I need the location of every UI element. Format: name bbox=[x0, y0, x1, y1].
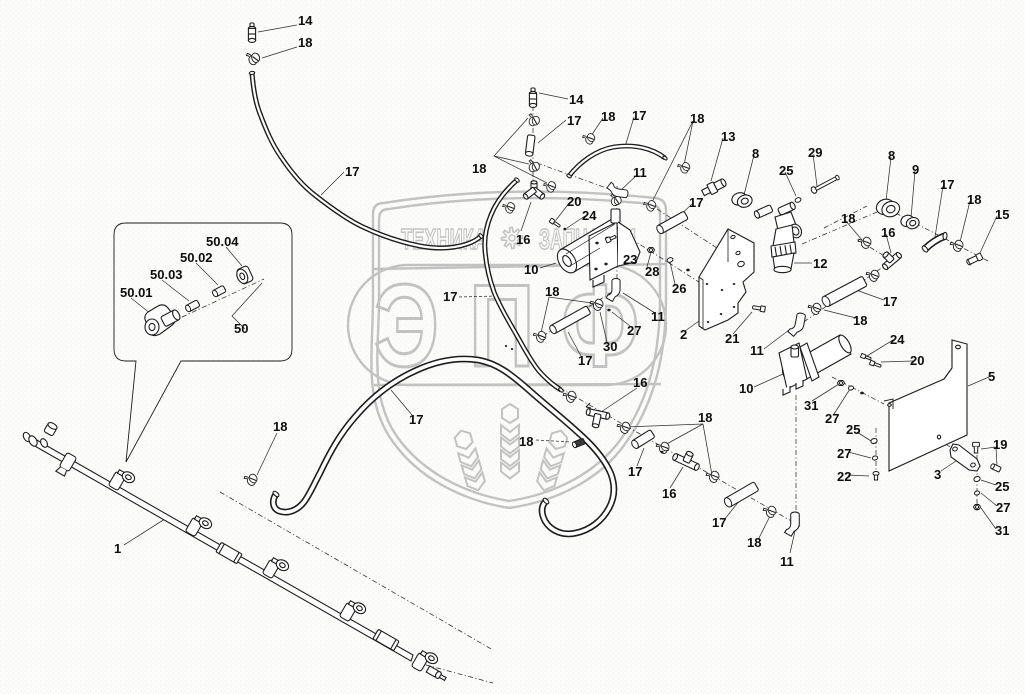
svg-text:18: 18 bbox=[472, 161, 486, 176]
svg-text:24: 24 bbox=[582, 208, 597, 223]
svg-text:14: 14 bbox=[298, 13, 313, 28]
svg-text:21: 21 bbox=[725, 331, 739, 346]
svg-text:1: 1 bbox=[114, 541, 121, 556]
svg-text:18: 18 bbox=[545, 284, 559, 299]
svg-text:8: 8 bbox=[888, 148, 895, 163]
svg-text:17: 17 bbox=[628, 464, 642, 479]
svg-text:18: 18 bbox=[519, 434, 533, 449]
svg-text:17: 17 bbox=[632, 108, 646, 123]
svg-text:27: 27 bbox=[627, 323, 641, 338]
svg-text:11: 11 bbox=[780, 554, 794, 569]
svg-text:17: 17 bbox=[712, 515, 726, 530]
svg-text:18: 18 bbox=[967, 192, 981, 207]
svg-text:17: 17 bbox=[578, 353, 592, 368]
svg-text:2: 2 bbox=[680, 327, 687, 342]
svg-text:29: 29 bbox=[808, 145, 822, 160]
svg-text:18: 18 bbox=[298, 35, 312, 50]
svg-text:18: 18 bbox=[273, 419, 287, 434]
svg-text:16: 16 bbox=[633, 375, 647, 390]
svg-text:26: 26 bbox=[672, 281, 686, 296]
svg-text:13: 13 bbox=[721, 129, 735, 144]
svg-text:5: 5 bbox=[988, 369, 995, 384]
svg-text:23: 23 bbox=[623, 252, 637, 267]
svg-text:30: 30 bbox=[603, 339, 617, 354]
svg-text:28: 28 bbox=[645, 264, 659, 279]
svg-text:27: 27 bbox=[996, 500, 1010, 515]
svg-text:17: 17 bbox=[443, 289, 457, 304]
svg-text:27: 27 bbox=[837, 446, 851, 461]
svg-text:17: 17 bbox=[409, 412, 423, 427]
svg-text:17: 17 bbox=[883, 294, 897, 309]
svg-text:16: 16 bbox=[516, 232, 530, 247]
svg-text:25: 25 bbox=[779, 163, 793, 178]
svg-text:24: 24 bbox=[890, 332, 905, 347]
svg-text:15: 15 bbox=[995, 207, 1009, 222]
svg-text:17: 17 bbox=[567, 113, 581, 128]
svg-text:18: 18 bbox=[690, 111, 704, 126]
svg-text:27: 27 bbox=[825, 411, 839, 426]
svg-text:18: 18 bbox=[601, 109, 615, 124]
svg-text:20: 20 bbox=[567, 194, 581, 209]
svg-text:16: 16 bbox=[662, 486, 676, 501]
svg-text:16: 16 bbox=[881, 225, 895, 240]
svg-text:50: 50 bbox=[234, 321, 248, 336]
svg-text:11: 11 bbox=[651, 309, 665, 324]
svg-text:18: 18 bbox=[698, 410, 712, 425]
svg-text:10: 10 bbox=[739, 381, 753, 396]
svg-text:10: 10 bbox=[524, 262, 538, 277]
svg-text:17: 17 bbox=[940, 177, 954, 192]
svg-text:25: 25 bbox=[995, 479, 1009, 494]
svg-text:50.01: 50.01 bbox=[120, 285, 153, 300]
svg-text:50.03: 50.03 bbox=[150, 267, 183, 282]
svg-text:20: 20 bbox=[910, 353, 924, 368]
svg-text:31: 31 bbox=[804, 398, 818, 413]
svg-text:18: 18 bbox=[853, 313, 867, 328]
svg-text:11: 11 bbox=[750, 343, 764, 358]
svg-text:18: 18 bbox=[841, 211, 855, 226]
svg-text:50.02: 50.02 bbox=[180, 250, 213, 265]
svg-text:12: 12 bbox=[813, 256, 827, 271]
svg-text:8: 8 bbox=[752, 146, 759, 161]
svg-text:50.04: 50.04 bbox=[206, 234, 239, 249]
svg-text:9: 9 bbox=[912, 162, 919, 177]
svg-text:14: 14 bbox=[569, 92, 584, 107]
svg-text:25: 25 bbox=[846, 422, 860, 437]
svg-text:17: 17 bbox=[689, 195, 703, 210]
svg-text:17: 17 bbox=[345, 164, 359, 179]
svg-text:31: 31 bbox=[995, 523, 1009, 538]
svg-text:3: 3 bbox=[934, 467, 941, 482]
svg-text:22: 22 bbox=[837, 469, 851, 484]
svg-text:11: 11 bbox=[633, 165, 647, 180]
svg-text:18: 18 bbox=[747, 535, 761, 550]
svg-text:19: 19 bbox=[993, 437, 1007, 452]
